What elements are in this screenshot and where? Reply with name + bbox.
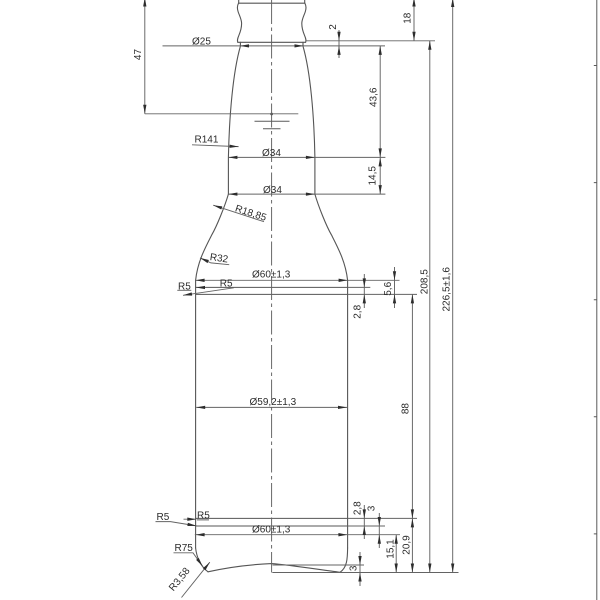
svg-text:R141: R141	[195, 135, 219, 146]
svg-text:R3,58: R3,58	[167, 566, 193, 594]
svg-text:Ø60±1,3: Ø60±1,3	[252, 270, 291, 281]
svg-text:R5: R5	[178, 282, 191, 293]
svg-text:R75: R75	[175, 543, 194, 554]
svg-text:3: 3	[366, 505, 377, 511]
svg-text:Ø34: Ø34	[262, 148, 281, 159]
svg-text:2,8: 2,8	[353, 304, 364, 318]
svg-text:R18,85: R18,85	[234, 203, 268, 224]
svg-text:208,5: 208,5	[420, 269, 431, 294]
svg-text:Ø60±1,3: Ø60±1,3	[252, 524, 291, 535]
svg-text:88: 88	[400, 403, 411, 415]
svg-text:R5: R5	[157, 512, 170, 523]
svg-text:226,5±1,6: 226,5±1,6	[442, 267, 453, 312]
svg-text:2,8: 2,8	[352, 501, 363, 515]
svg-text:20,9: 20,9	[402, 535, 413, 555]
svg-text:Ø59,2±1,3: Ø59,2±1,3	[250, 397, 297, 408]
svg-text:R32: R32	[209, 252, 229, 266]
svg-text:3: 3	[349, 565, 360, 571]
svg-text:R5: R5	[220, 279, 233, 290]
svg-text:Ø34: Ø34	[263, 185, 282, 196]
svg-text:47: 47	[133, 49, 144, 61]
svg-text:18: 18	[402, 12, 413, 24]
svg-text:43,6: 43,6	[369, 87, 380, 107]
svg-text:5,6: 5,6	[383, 281, 394, 295]
svg-text:15,1: 15,1	[385, 539, 396, 559]
svg-text:Ø25: Ø25	[192, 36, 211, 47]
svg-text:R5: R5	[197, 511, 210, 522]
svg-text:2: 2	[328, 24, 339, 30]
svg-text:14,5: 14,5	[368, 166, 379, 186]
